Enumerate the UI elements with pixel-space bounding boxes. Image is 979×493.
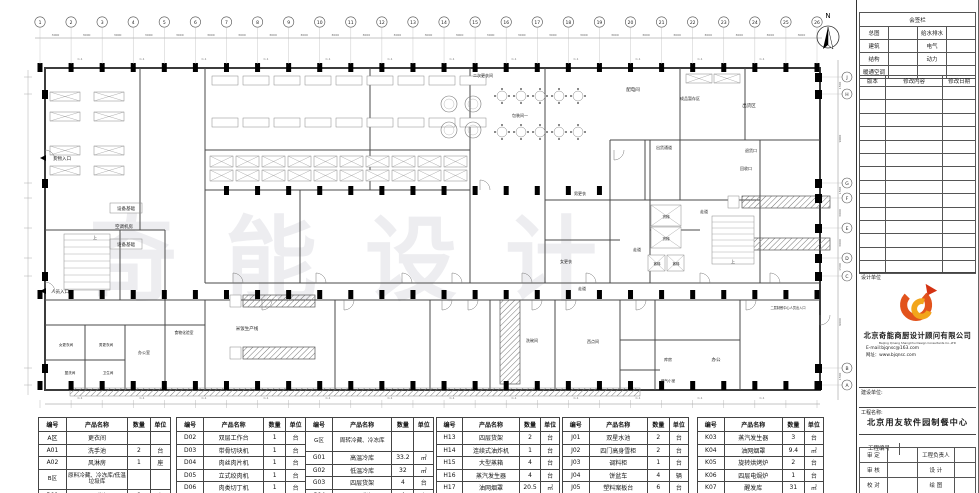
svg-text:7: 7 [225,20,228,26]
drawing-sheet: 奇能设计 13000230003300043000530006300073000… [0,0,979,493]
signature-row: 审 定工程负责人 [860,448,976,463]
room-label: 成品暂存区 [680,95,700,101]
svg-text:3000: 3000 [704,33,712,37]
table-row: J05塑料案板台6台 [563,482,689,493]
loading-dock-strip [70,388,640,396]
svg-text:8: 8 [256,20,259,26]
table-row: G03四层货架4台 [306,477,434,490]
room-label: 退货口 [745,147,757,153]
svg-text:C-1: C-1 [77,396,82,400]
signature-row: 审 核设 计 [860,463,976,478]
svg-text:C-1: C-1 [139,396,144,400]
room-label: 客梯 [673,261,680,266]
table-row: H15大型蒸箱4台 [437,457,560,470]
room-label: 出货区 [742,102,756,109]
revision-empty-row [860,220,976,233]
signature-fields: 审 定工程负责人审 核设 计校 对绘 图 [859,447,976,493]
svg-text:C-1: C-1 [201,57,206,61]
revision-table: 版本修改内容修改日期 [859,75,976,274]
svg-text:3000: 3000 [331,33,339,37]
equipment-table-4: 编号产品名称数量单位H13四层货架2台H14连续式油炸机1台H15大型蒸箱4台H… [436,417,560,493]
table-row: D02双层工作台1台 [177,432,306,445]
svg-text:C-1: C-1 [387,57,392,61]
svg-text:1500: 1500 [838,82,842,90]
svg-text:E: E [846,226,849,232]
svg-text:23: 23 [721,20,727,26]
sign-row: 结构动力 [860,53,976,66]
svg-text:1500: 1500 [838,263,842,271]
table-row: H13四层货架2台 [437,432,560,445]
room-label: 客梯 [654,261,661,266]
svg-text:5: 5 [163,20,166,26]
svg-text:N: N [825,12,830,20]
build-unit-label: 建设单位: [861,389,883,396]
svg-text:3000: 3000 [114,33,122,37]
build-unit-block: 建设单位: [859,388,976,408]
revision-empty-row [860,167,976,180]
svg-text:H: H [845,92,848,98]
project-name: 北京用友软件园制餐中心 [859,416,976,428]
table-row: K07醒发库31㎡ [698,482,824,493]
room-label: 女更衣 [560,258,572,264]
room-label: 走道 [700,208,708,214]
company-logo [859,282,976,330]
table-row: K05旋转烘烤炉2台 [698,457,824,470]
svg-text:3000: 3000 [487,33,495,37]
svg-text:9000: 9000 [838,135,842,143]
equipment-table-header: 编号产品名称数量单位 [563,418,689,432]
sign-column-table: 会签栏总图给水排水建筑电气结构动力暖通空调 [859,12,976,79]
revision-header: 版本修改内容修改日期 [860,76,976,87]
room-label: 西点间 [587,338,599,344]
svg-text:13: 13 [410,20,416,26]
company-name-en: Beijing Qineng ShangChu Design Consultan… [865,341,970,345]
table-row: K03蒸汽发生器3台 [698,432,824,445]
room-label: 洗碗间 [526,337,538,343]
equipment-table-1: 编号产品名称数量单位A区更衣间A01洗手池2台A02风淋房1座B区原料冷藏、冷冻… [38,417,171,493]
revision-empty-row [860,153,976,166]
table-row: J01双星水池2台 [563,432,689,445]
svg-text:3000: 3000 [549,33,557,37]
svg-text:C-1: C-1 [325,57,330,61]
room-label: 米饭生产线 [236,325,259,332]
room-label: 设备基础 [117,241,135,248]
room-label: 人员入口 [51,289,69,295]
svg-text:C-1: C-1 [697,57,702,61]
svg-text:G: G [845,181,849,187]
equipment-table-2: 编号产品名称数量单位D02双层工作台1台D03带骨切块机1台D04肉丝肉片机1台… [176,417,306,493]
svg-text:3000: 3000 [425,33,433,37]
revision-empty-row [860,194,976,207]
svg-text:3000: 3000 [362,33,370,37]
company-website: 网址：www.bjqnsc.com [866,352,976,358]
table-row: J04饼盆车4辆 [563,469,689,482]
svg-text:3000: 3000 [145,33,153,37]
equipment-table-header: 编号产品名称数量单位 [306,418,434,432]
table-row: J02四门高身雪柜2台 [563,444,689,457]
svg-text:C-1: C-1 [263,396,268,400]
revision-empty-row [860,140,976,153]
signature-row: 校 对绘 图 [860,478,976,493]
company-email: E-mail:bjqnsc@163.com [866,346,976,351]
room-label: 货物入口 [53,155,71,162]
svg-text:3000: 3000 [52,33,60,37]
table-row: B区原料冷藏、冷冻库/低温垃圾库 [39,469,171,489]
room-label: 上 [731,258,735,264]
room-label: 出货通道 [656,144,672,150]
svg-text:18: 18 [565,20,571,26]
svg-text:21: 21 [659,20,665,26]
sign-row: 总图给水排水 [860,27,976,40]
north-arrow-icon: N [817,12,839,49]
design-unit-label: 设计单位 [861,274,881,281]
room-label: 货梯 [662,214,670,219]
svg-text:C-1: C-1 [697,396,702,400]
svg-text:C-1: C-1 [201,396,206,400]
room-label: 男更衣间 [99,342,114,347]
svg-text:1500: 1500 [838,187,842,195]
svg-text:3000: 3000 [83,33,91,37]
svg-text:3000: 3000 [456,33,464,37]
svg-text:20: 20 [628,20,634,26]
svg-text:C-1: C-1 [635,57,640,61]
room-label: 二层制餐中心人员出入口 [770,305,805,310]
svg-text:6: 6 [194,20,197,26]
svg-text:3000: 3000 [673,33,681,37]
svg-text:3000: 3000 [611,33,619,37]
svg-text:F: F [846,196,849,202]
svg-text:3000: 3000 [767,33,775,37]
svg-text:16: 16 [503,20,509,26]
project-name-label: 工程名称: [861,409,883,416]
room-label: 空调机房 [115,223,133,230]
room-label: 库房 [664,356,672,362]
room-label: 燃气小室 [661,378,676,383]
company-name-cn: 北京奇能商厨设计顾问有限公司 [859,331,976,341]
svg-text:3000: 3000 [394,33,402,37]
table-row: B01四层货架8台 [39,489,171,493]
table-row: G区周转冷藏、冷冻库 [306,432,434,452]
revision-empty-row [860,87,976,100]
svg-text:3000: 3000 [580,33,588,37]
room-label: 卫生间 [103,370,114,375]
table-row: H16蒸汽发生器4台 [437,469,560,482]
svg-text:9: 9 [287,20,290,26]
equipment-table-header: 编号产品名称数量单位 [437,418,560,432]
equipment-table-5: 编号产品名称数量单位J01双星水池2台J02四门高身雪柜2台J03调料柜1台J0… [562,417,689,493]
svg-text:C-1: C-1 [511,57,516,61]
room-label: 男更衣 [574,190,586,196]
room-label: 设备基础 [117,205,135,212]
svg-text:C-1: C-1 [449,57,454,61]
svg-text:3000: 3000 [798,33,806,37]
equipment-table-6: 编号产品名称数量单位K03蒸汽发生器3台K04油网烟罩9.4㎡K05旋转烘烤炉2… [697,417,824,493]
svg-text:C-1: C-1 [573,396,578,400]
svg-text:C-1: C-1 [77,57,82,61]
svg-text:22: 22 [690,20,696,26]
svg-text:C-1: C-1 [759,57,764,61]
table-row: H17油网烟罩20.5㎡ [437,482,560,493]
room-label: 办公 [712,356,721,363]
svg-text:4: 4 [132,20,135,26]
table-row: G01高温冷库33.2㎡ [306,452,434,465]
table-row: A02风淋房1座 [39,457,171,470]
svg-text:3000: 3000 [207,33,215,37]
svg-text:11: 11 [348,20,354,26]
svg-text:9000: 9000 [838,318,842,326]
svg-text:3000: 3000 [642,33,650,37]
room-label: 货梯 [662,236,670,241]
room-label: 配电间 [626,86,640,93]
room-label: 走道 [578,285,586,291]
title-block: 会签栏总图给水排水建筑电气结构动力暖通空调 版本修改内容修改日期 设计单位 北京… [856,0,979,493]
room-label: 办公室 [138,349,150,355]
table-row: H14连续式油炸机1台 [437,444,560,457]
svg-text:25: 25 [783,20,789,26]
table-row: G04四层货架4台 [306,489,434,493]
revision-empty-row [860,180,976,193]
table-row: G02低温冷库32㎡ [306,464,434,477]
svg-text:3000: 3000 [735,33,743,37]
room-label: 食物化验室 [175,330,194,335]
room-label: 上 [93,234,97,240]
room-label: 女更衣间 [59,342,74,347]
svg-text:3000: 3000 [518,33,526,37]
equipment-table-header: 编号产品名称数量单位 [39,418,171,432]
svg-text:3000: 3000 [176,33,184,37]
revision-empty-row [860,207,976,220]
svg-text:C-1: C-1 [139,57,144,61]
svg-text:C: C [845,274,848,280]
svg-text:3000: 3000 [238,33,246,37]
table-row: K04油网烟罩9.4㎡ [698,444,824,457]
table-row: D06肉类切丁机1台 [177,482,306,493]
equipment-table-3: 编号产品名称数量单位G区周转冷藏、冷冻库G01高温冷库33.2㎡G02低温冷库3… [305,417,434,493]
equipment-table-header: 编号产品名称数量单位 [177,418,306,432]
svg-text:3: 3 [101,20,104,26]
revision-empty-row [860,127,976,140]
room-label: 包装间一 [512,112,528,118]
revision-empty-row [860,247,976,260]
svg-text:C-1: C-1 [387,396,392,400]
svg-text:C-1: C-1 [263,57,268,61]
svg-text:1: 1 [39,20,42,26]
svg-text:C-1: C-1 [635,396,640,400]
table-row: K06四层电焗炉1台 [698,469,824,482]
svg-text:C-1: C-1 [573,57,578,61]
table-row: D04肉丝肉片机1台 [177,457,306,470]
room-label: 二次更衣间 [473,72,493,78]
equipment-table-header: 编号产品名称数量单位 [698,418,824,432]
room-label: 回收口 [740,165,752,171]
revision-empty-row [860,113,976,126]
svg-text:17: 17 [534,20,540,26]
svg-text:19: 19 [597,20,603,26]
design-unit-block: 设计单位 北京奇能商厨设计顾问有限公司 Beijing Qineng Shang… [859,272,976,388]
svg-text:1500: 1500 [838,373,842,381]
sign-row: 建筑电气 [860,40,976,53]
revision-empty-row [860,100,976,113]
svg-text:14: 14 [441,20,447,26]
table-row: D03带骨切块机1台 [177,444,306,457]
svg-text:10: 10 [317,20,323,26]
svg-text:26: 26 [814,20,820,26]
svg-text:C-1: C-1 [759,396,764,400]
svg-text:3000: 3000 [838,209,842,217]
svg-text:D: D [845,256,849,262]
table-row: J03调料柜1台 [563,457,689,470]
svg-text:B: B [845,366,848,372]
revision-empty-row [860,234,976,247]
room-label: 盥洗间 [65,370,76,375]
svg-text:C-1: C-1 [511,396,516,400]
svg-text:12: 12 [379,20,385,26]
svg-text:15: 15 [472,20,478,26]
table-row: A区更衣间 [39,432,171,445]
svg-text:3000: 3000 [300,33,308,37]
svg-text:3000: 3000 [838,239,842,247]
svg-text:3000: 3000 [269,33,277,37]
svg-text:2: 2 [70,20,73,26]
table-row: D05立式绞肉机1台 [177,469,306,482]
svg-text:C-1: C-1 [325,396,330,400]
svg-text:C-1: C-1 [449,396,454,400]
svg-text:24: 24 [752,20,758,26]
sign-column-header: 会签栏 [860,13,976,27]
project-name-block: 工程名称: 北京用友软件园制餐中心 [859,408,976,435]
table-row: A01洗手池2台 [39,444,171,457]
room-label: 走道 [633,246,641,252]
svg-text:J: J [845,75,847,81]
